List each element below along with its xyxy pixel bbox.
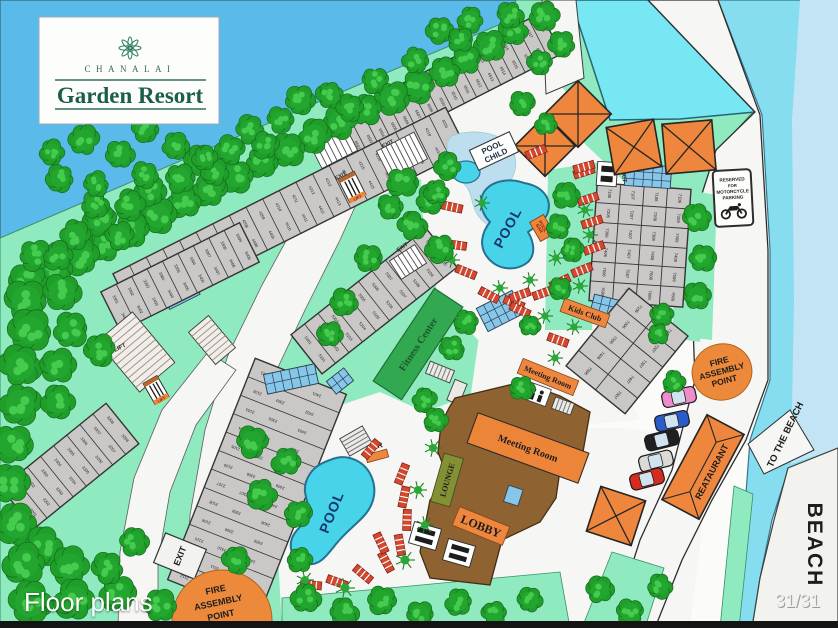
svg-text:CHANALAI: CHANALAI: [85, 64, 176, 74]
svg-text:Floor plans: Floor plans: [24, 587, 153, 617]
svg-text:31/31: 31/31: [775, 591, 820, 611]
svg-text:Garden Resort: Garden Resort: [57, 83, 204, 108]
